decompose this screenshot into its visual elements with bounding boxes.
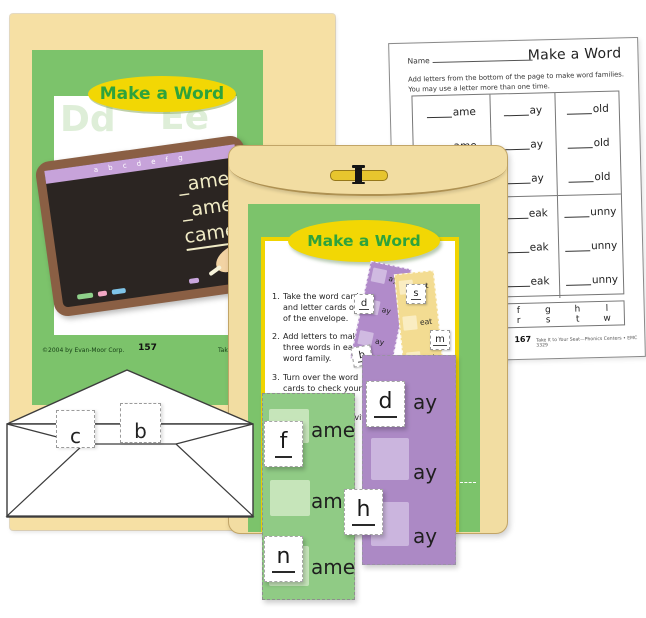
- word-suffix: ame: [311, 420, 355, 440]
- card-title: Make a Word: [307, 232, 420, 250]
- chalk-piece-purple-icon: [189, 278, 200, 284]
- letter-card-c: c: [56, 410, 95, 448]
- bank-letter: t: [563, 314, 593, 325]
- table-cell: unny: [560, 262, 625, 298]
- word-suffix: ay: [413, 462, 437, 482]
- name-blank-line: [433, 53, 533, 63]
- chalk-piece-pink-icon: [98, 291, 108, 297]
- clasp-string-icon: [355, 165, 362, 184]
- word-square: [371, 438, 409, 480]
- folder-title: Make a Word: [100, 84, 224, 104]
- paper-envelope: [4, 366, 256, 522]
- chalk-piece-green-icon: [77, 292, 94, 299]
- card-title-banner: Make a Word: [288, 220, 440, 262]
- table-cell: old: [555, 91, 620, 127]
- word-suffix: ame: [311, 557, 355, 577]
- letter-card-d: d: [366, 381, 405, 427]
- table-cell: ay: [490, 93, 556, 129]
- bank-letter: r: [504, 316, 534, 327]
- product-photo-stage: Dd Ee Cc Aa Make a Word a b c d e f g _a…: [0, 0, 646, 618]
- table-cell: ame: [412, 95, 491, 131]
- bank-letter: w: [592, 313, 622, 324]
- word-suffix: ay: [413, 392, 437, 412]
- letter-card-h: h: [344, 489, 383, 535]
- worksheet-page-number: 167: [514, 335, 531, 344]
- worksheet-title: Make a Word: [528, 45, 622, 63]
- word-square: [270, 480, 310, 516]
- table-cell: old: [557, 159, 622, 195]
- letter-card-f: f: [264, 421, 303, 467]
- letter-bank-letters: f g h l r s t w: [504, 303, 622, 326]
- name-field: Name: [407, 53, 532, 66]
- mini-letter-card-d: d: [354, 294, 374, 314]
- bank-letter: s: [533, 315, 563, 326]
- worksheet-footer-text: Take It to Your Seat—Phonics Centers • E…: [536, 336, 645, 349]
- chalk-piece-blue-icon: [112, 288, 127, 295]
- table-cell: unny: [559, 228, 624, 264]
- mini-letter-card-s: s: [406, 284, 426, 304]
- green-word-strip: ame ame ame f n: [262, 393, 355, 600]
- letter-card-n: n: [264, 536, 303, 582]
- word-suffix: ay: [413, 526, 437, 546]
- worksheet-footer: 167 Take It to Your Seat—Phonics Centers…: [514, 332, 644, 349]
- letter-card-b: b: [120, 403, 161, 443]
- table-cell: old: [556, 125, 621, 161]
- cut-line: [460, 482, 476, 483]
- brad-clasp-icon: [330, 164, 386, 186]
- table-cell: unny: [558, 194, 623, 230]
- folder-title-banner: Make a Word: [88, 76, 236, 112]
- mini-letter-card-m: m: [430, 330, 450, 350]
- name-label: Name: [407, 56, 429, 66]
- ghost-letter: Dd: [60, 102, 116, 138]
- mini-strip-row: eat: [402, 314, 432, 331]
